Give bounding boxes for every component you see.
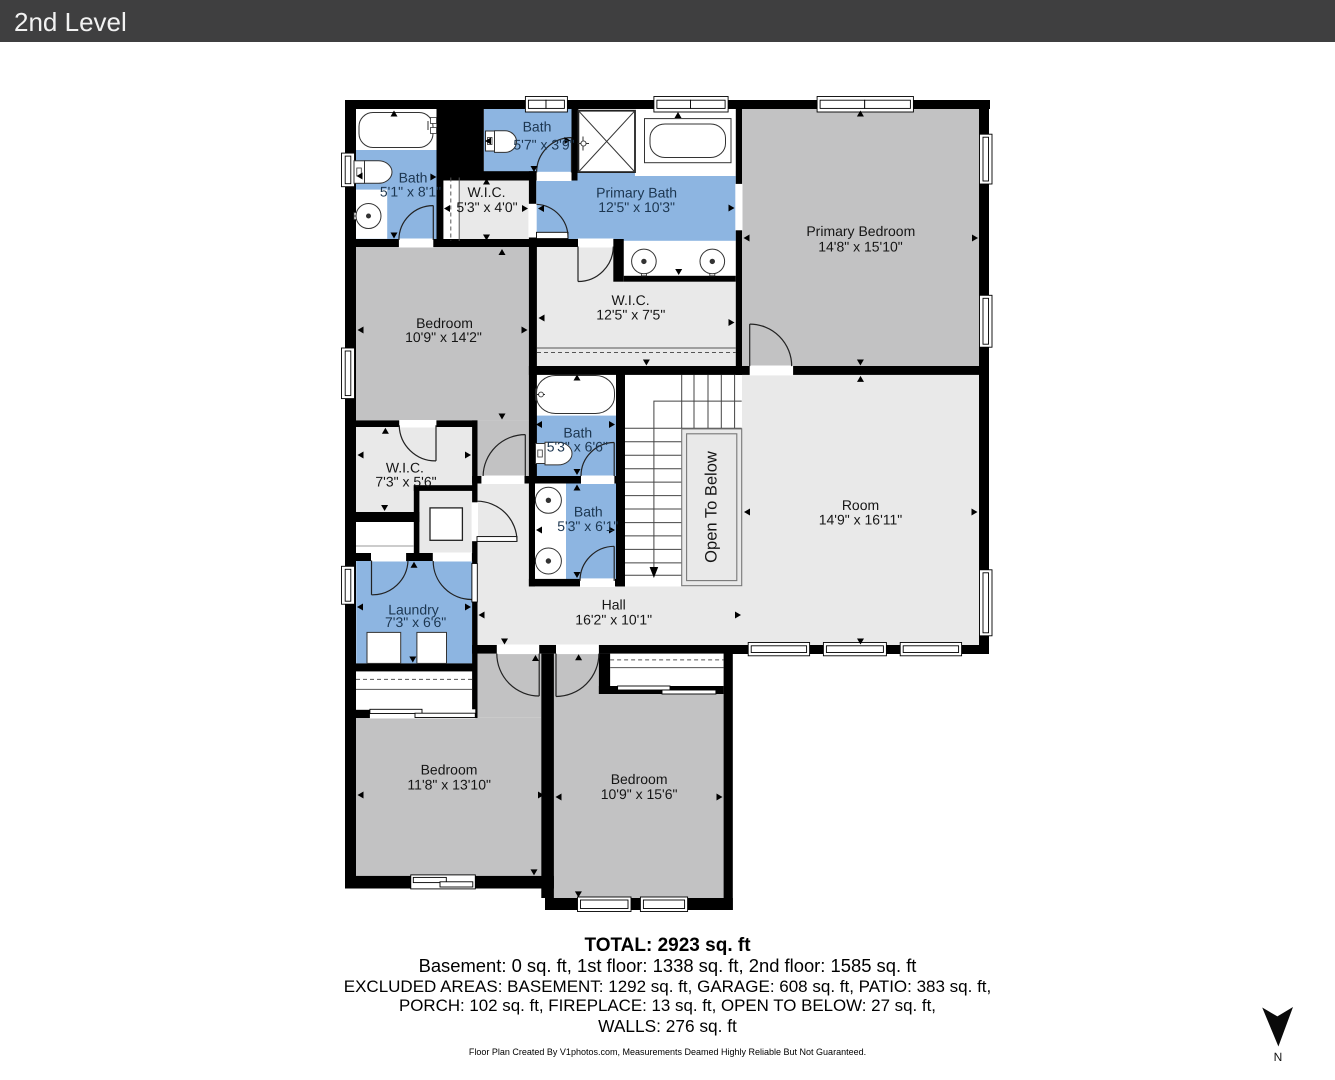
svg-text:12'5" x 10'3": 12'5" x 10'3" xyxy=(598,199,675,215)
svg-text:14'9" x 16'11": 14'9" x 16'11" xyxy=(819,512,903,528)
svg-text:5'7" x 3'9": 5'7" x 3'9" xyxy=(513,137,574,153)
svg-text:W.I.C.: W.I.C. xyxy=(467,184,505,200)
svg-text:7'3" x 5'6": 7'3" x 5'6" xyxy=(375,473,436,489)
svg-text:Bedroom: Bedroom xyxy=(611,771,668,787)
svg-text:5'3" x 4'0": 5'3" x 4'0" xyxy=(456,199,517,215)
svg-text:5'3" x 6'6": 5'3" x 6'6" xyxy=(547,439,608,455)
svg-text:Open To Below: Open To Below xyxy=(703,451,721,563)
svg-text:Bath: Bath xyxy=(523,119,552,135)
svg-text:5'1" x 8'1": 5'1" x 8'1" xyxy=(380,184,441,200)
svg-text:11'8" x 13'10": 11'8" x 13'10" xyxy=(407,777,491,793)
svg-text:12'5" x 7'5": 12'5" x 7'5" xyxy=(596,307,665,323)
svg-text:14'8" x 15'10": 14'8" x 15'10" xyxy=(818,239,903,255)
svg-text:10'9" x 15'6": 10'9" x 15'6" xyxy=(601,786,678,802)
svg-text:10'9" x 14'2": 10'9" x 14'2" xyxy=(405,329,482,345)
svg-text:Bedroom: Bedroom xyxy=(421,762,478,778)
svg-text:Primary Bedroom: Primary Bedroom xyxy=(806,223,915,239)
svg-text:Hall: Hall xyxy=(602,597,626,613)
svg-text:16'2" x 10'1": 16'2" x 10'1" xyxy=(575,612,652,628)
svg-text:7'3" x 6'6": 7'3" x 6'6" xyxy=(385,614,446,630)
svg-text:5'3" x 6'1": 5'3" x 6'1" xyxy=(557,518,618,534)
